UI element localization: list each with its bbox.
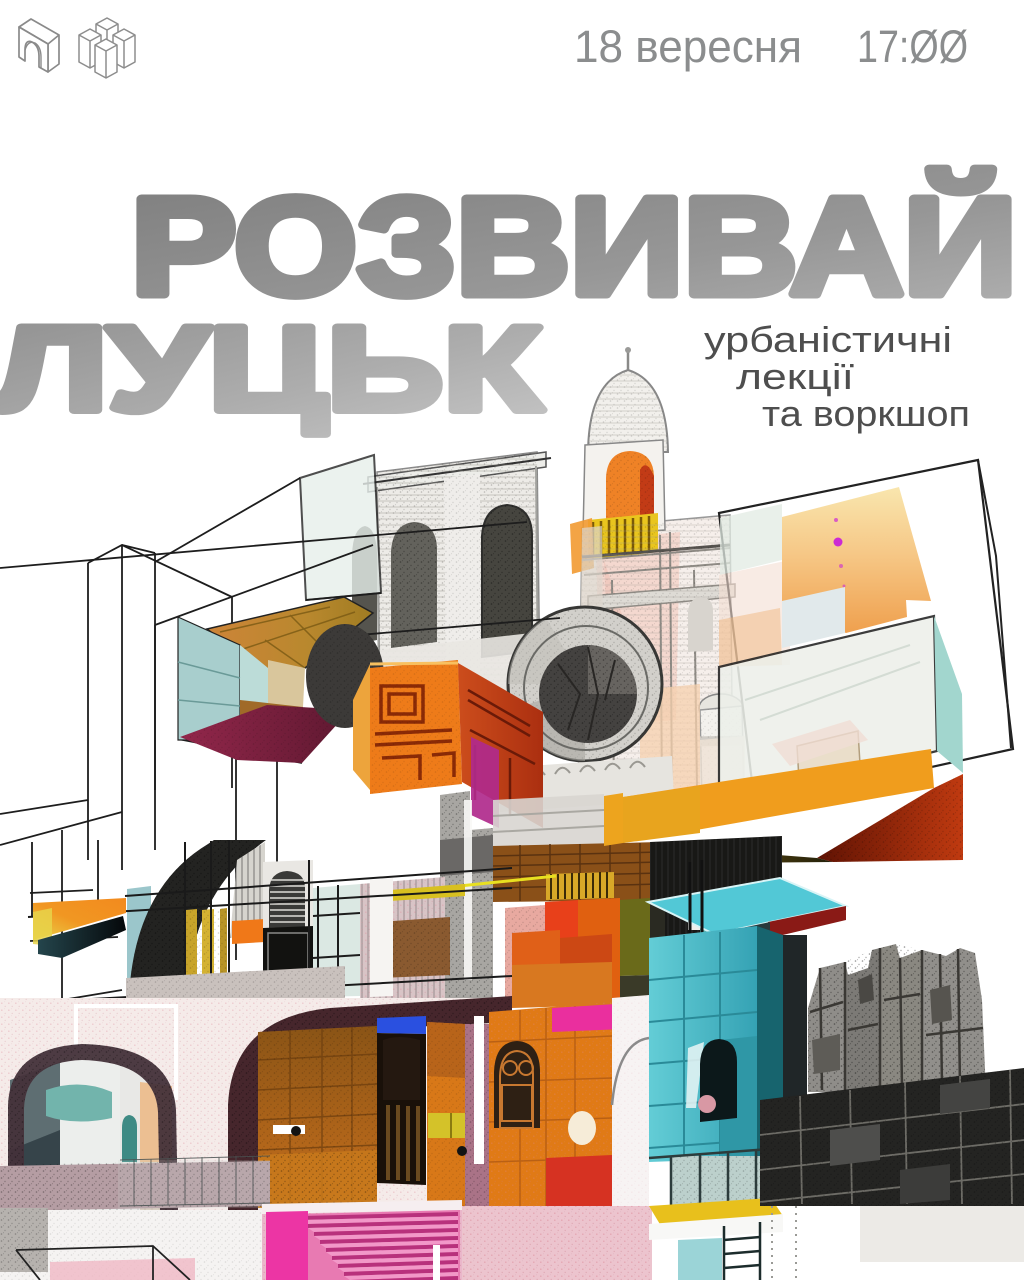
svg-text:та воркшоп: та воркшоп — [762, 393, 970, 434]
svg-text:18 вересня: 18 вересня — [574, 21, 802, 72]
svg-text:РОЗВИВАЙ: РОЗВИВАЙ — [131, 169, 1017, 324]
svg-text:ЛУЦЬК: ЛУЦЬК — [0, 302, 543, 436]
svg-text:урбаністичні: урбаністичні — [704, 319, 952, 360]
svg-text:лекції: лекції — [736, 356, 854, 397]
svg-text:17:ØØ: 17:ØØ — [857, 21, 968, 72]
